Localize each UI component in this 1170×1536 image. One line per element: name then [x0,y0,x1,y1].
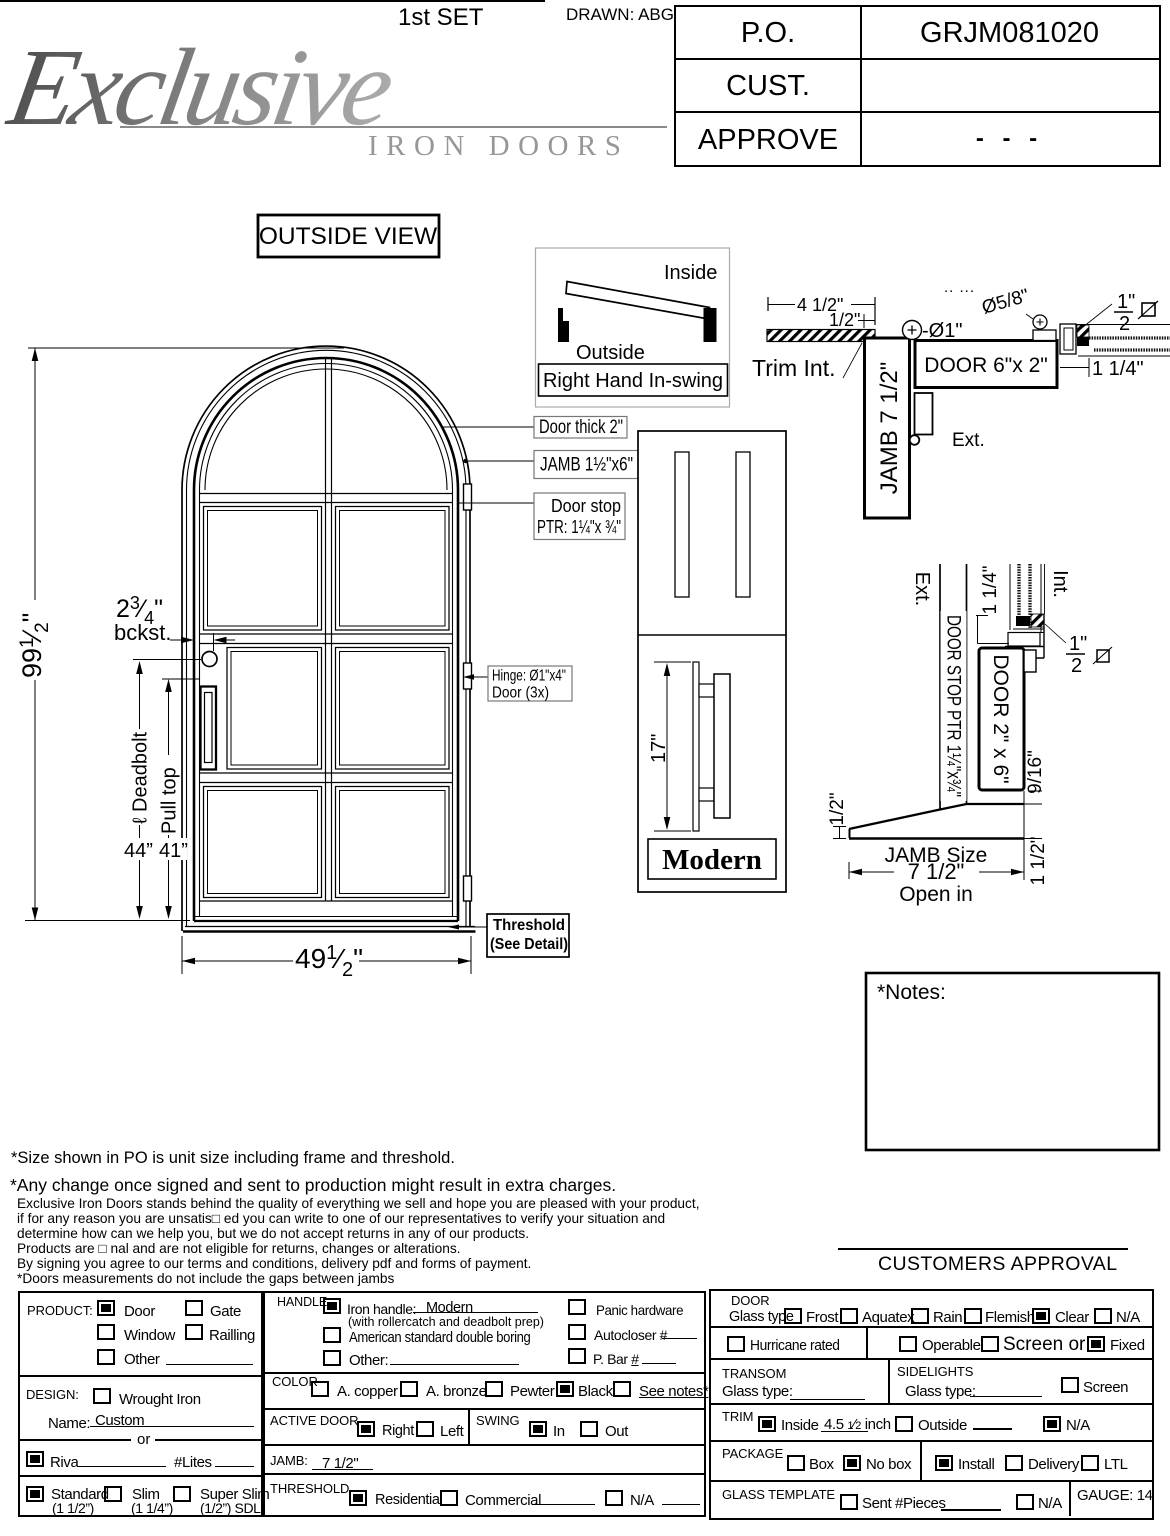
svg-text:1 1/4": 1 1/4" [1092,358,1144,380]
svg-text:*Notes:: *Notes: [877,981,946,1004]
svg-text:41”: 41” [159,840,188,862]
svg-text:9/16": 9/16" [1025,750,1046,794]
svg-text:Pull top: Pull top [159,767,181,834]
svg-text:Ext.: Ext. [911,572,933,606]
svg-text:Right Hand In-swing: Right Hand In-swing [543,370,723,392]
svg-text:Ext.: Ext. [952,430,985,451]
svg-text:DOOR 6"x 2": DOOR 6"x 2" [924,354,1047,377]
svg-text:2: 2 [1119,313,1130,335]
svg-text:1": 1" [1117,291,1135,313]
svg-text:Door stop: Door stop [551,495,621,516]
svg-text:1/2": 1/2" [829,310,860,330]
svg-text:Threshold: Threshold [493,917,565,934]
svg-text:DOOR 2" x 6": DOOR 2" x 6" [989,654,1012,783]
svg-text:Inside: Inside [664,262,717,284]
svg-text:DOOR STOP PTR 1¼"x¾": DOOR STOP PTR 1¼"x¾" [943,615,964,797]
svg-text:ℓ Deadbolt: ℓ Deadbolt [130,731,152,824]
svg-text:OUTSIDE VIEW: OUTSIDE VIEW [259,223,438,250]
svg-text:Outside: Outside [576,342,645,364]
svg-text:1/2": 1/2" [827,792,848,825]
svg-text:Int.: Int. [1049,570,1071,598]
svg-text:Door (3x): Door (3x) [492,685,549,702]
svg-text:7 1/2": 7 1/2" [908,859,965,884]
svg-text:2: 2 [1071,655,1082,677]
svg-text:(See Detail): (See Detail) [490,936,568,953]
svg-text:-Ø1": -Ø1" [922,320,962,342]
svg-text:44”: 44” [124,840,153,862]
svg-text:1 1/2": 1 1/2" [1028,836,1049,885]
svg-text:bckst.: bckst. [114,620,171,645]
svg-text:17": 17" [648,734,670,763]
svg-text:Hinge: Ø1"x4": Hinge: Ø1"x4" [492,668,566,685]
svg-text:Modern: Modern [662,844,762,876]
svg-text:Open in: Open in [899,883,973,906]
svg-text:.. ...: .. ... [944,279,975,296]
svg-text:PTR: 1¼"x ¾": PTR: 1¼"x ¾" [537,516,621,537]
svg-text:1": 1" [1069,633,1087,655]
svg-text:JAMB 1½"x6": JAMB 1½"x6" [540,455,633,476]
svg-text:JAMB 7 1/2": JAMB 7 1/2" [876,362,903,495]
svg-text:1 1/4": 1 1/4" [980,565,1001,614]
svg-text:Trim Int.: Trim Int. [752,355,835,381]
svg-text:Ø5/8": Ø5/8" [980,285,1032,318]
svg-text:Door thick 2": Door thick 2" [539,417,623,438]
svg-text:991⁄2": 991⁄2" [17,613,53,678]
